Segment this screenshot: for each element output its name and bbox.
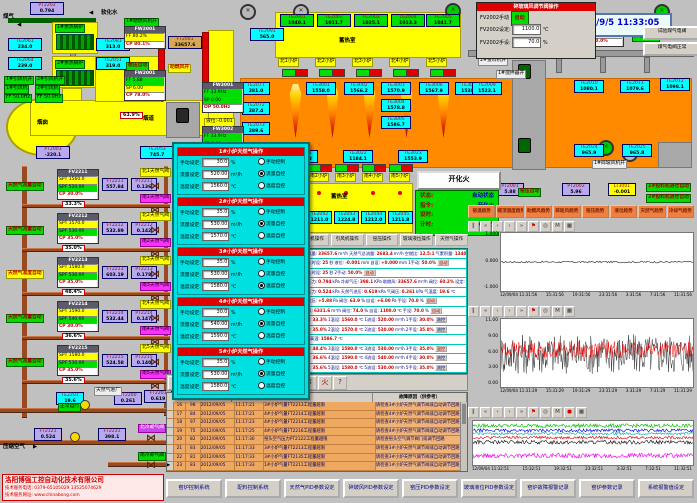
tag-value: 287.4 <box>243 109 269 115</box>
fan-pump-icon: ✕ <box>240 4 256 20</box>
port-damper[interactable] <box>282 69 308 77</box>
instrument-tag: TE3004 1578.8 <box>381 99 411 112</box>
operation-button[interactable]: 天然气操作 <box>435 234 468 246</box>
flow-auto-radio[interactable] <box>258 370 265 377</box>
data-segment: 阀位: <box>339 298 349 303</box>
valve-icon[interactable]: ⋈ <box>150 226 160 236</box>
status-label: FF 50.0Hz <box>35 94 63 103</box>
company-website[interactable]: 技术服务网址: www.chinabong.com <box>5 492 161 499</box>
temp-set-input[interactable]: 1580.0 <box>202 382 229 391</box>
trend-button[interactable]: 碎玻风趋势 <box>553 205 580 218</box>
tag-value: 1553.9 <box>399 157 427 163</box>
alarm-point: 窑头空气压力PT2122工程量越限 <box>264 436 376 445</box>
alarm-time: 11:17:21 <box>235 411 264 420</box>
x-tick: 15:31:29 <box>546 388 564 393</box>
y-tick: 9.00 <box>488 334 498 339</box>
alarm-reason: 请检查3#小炉天然气调节阀或自动调节回路 <box>376 454 467 463</box>
flow-set-label: 流量设定: <box>180 273 201 278</box>
gas-controller-faceplate[interactable]: FV2214 SPT 1590.0 SPF 540.00 CP 30.0% <box>57 301 99 332</box>
port-damper[interactable] <box>430 69 456 77</box>
chart-toolbar-icon[interactable]: « <box>480 306 491 317</box>
alarm-reason: 请检查4#小炉天然气调节阀或自动调节回路 <box>376 411 467 420</box>
gas-controller-faceplate[interactable]: FV2215 SPT 1580.0 SPF 530.00 CP 35.0% <box>57 345 99 376</box>
toolbar-icon[interactable]: ? <box>333 376 347 390</box>
instrument-tag: TE2045 1211.8 <box>388 211 413 224</box>
data-segment: 1温设: <box>328 317 340 322</box>
data-row: 5阀位:35.6%5温设:1580.0℃5流设:530.00m³/h5手设:35… <box>298 364 466 372</box>
controller-faceplate[interactable]: FW2001 FF 80.2%CP 80.1% <box>124 26 166 49</box>
nav-button[interactable]: 窑压PID参数设定 <box>402 479 458 498</box>
data-row: 碎玻风:6331.6m³/h阀位:74.0%自设:1100.0℃手设:70.0%… <box>298 307 466 315</box>
instrument-tag: PT2003 -220.1 <box>36 146 70 159</box>
temp-set-input[interactable]: 1580.0 <box>202 282 229 291</box>
burner-panel: 4#小炉天然气操作 手动设定: 30.0 % 流量设定: 540.00 m³/h… <box>177 297 305 345</box>
alarm-time: 11:17:30 <box>235 436 264 445</box>
manual-set-input[interactable]: 35.0 <box>202 208 229 217</box>
data-segment: mm <box>399 260 407 265</box>
data-row: 助燃风量:33657.6m³/h天然气总流量:2683.4m³/h空燃比:12.… <box>298 250 466 258</box>
instrument-tag: TE2001 1040.1 <box>280 14 314 27</box>
drop-pipe <box>644 57 650 73</box>
burner-panel: 2#小炉天然气操作 手动设定: 35.0 % 流量设定: 530.00 m³/h… <box>177 197 305 245</box>
data-segment: FF 80.2% <box>125 33 164 41</box>
temp-auto-radio[interactable] <box>258 282 265 289</box>
data-row: 3阀位:48.4%3温设:1580.0℃3流设:530.00m³/h3手设:35… <box>298 345 466 353</box>
chart-toolbar-icon[interactable]: ∥ <box>468 407 479 418</box>
chart-toolbar-icon[interactable]: ⚑ <box>528 407 539 418</box>
unit-label: ℃ <box>231 285 236 290</box>
manual-set-input[interactable]: 35.0 <box>202 258 229 267</box>
flow-auto-radio[interactable] <box>258 170 265 177</box>
tag-value: -220.1 <box>37 153 69 159</box>
tag-value: 1566.2 <box>345 89 373 95</box>
instrument-tag: TE3005 1586.7 <box>381 116 411 129</box>
nav-button[interactable]: 窑炉故障报警记录 <box>520 479 576 498</box>
data-segment: 自动 <box>425 297 437 304</box>
instrument-tag: TE3003 1570.9 <box>381 82 411 95</box>
operation-button[interactable]: 引风机操作 <box>331 234 364 246</box>
alarm-row[interactable]: ▶ 23 83 2012/09/05 11:17:33 1#小炉气量FT2211… <box>167 462 467 471</box>
operation-button[interactable]: 玻璃液位操作 <box>400 234 433 246</box>
y-tick: 3.00 <box>488 365 498 370</box>
valve-position-box: 48.4% <box>62 289 85 296</box>
tag-value: 603.19 <box>103 273 127 279</box>
x-tick: 12/09/04 11:31:56 <box>500 292 537 297</box>
alarm-reason: 请检查1#小炉天然气调节阀或自动调节回路 <box>376 462 467 471</box>
data-segment: 4温设: <box>328 355 340 360</box>
chart-toolbar-icon[interactable]: ▦ <box>576 407 587 418</box>
chart-toolbar-icon[interactable]: ⚑ <box>528 306 539 317</box>
temp-set-label: 温度设定: <box>180 235 201 240</box>
instrument-tag: FT2001 33657.6 <box>168 36 202 49</box>
trend-button[interactable]: 窑温趋势 <box>468 205 495 218</box>
data-segment: ℃ <box>338 336 343 341</box>
chart2-toolbar: ∥«‹›»⚑◎M▦ <box>468 306 575 317</box>
data-segment: 阀位: <box>342 308 352 313</box>
status-label: 南4小炉 <box>362 173 383 182</box>
temp-set-input[interactable]: 1560.0 <box>202 182 229 191</box>
nav-button[interactable]: 窑炉参数记录 <box>579 479 635 498</box>
instrument-tag: TE2025 965.8 <box>622 144 652 157</box>
data-segment: 3手设: <box>406 346 418 351</box>
trend-button[interactable]: 天然气趋势 <box>638 205 665 218</box>
data-segment: 自设: <box>369 308 379 313</box>
faceplate-rows: FF 5.88SP 6.00CP 78.0% <box>125 77 165 100</box>
radio-label: 流量自控 <box>266 372 285 377</box>
port-damper[interactable] <box>393 69 419 77</box>
instrument-tag: TE2044 1212.0 <box>361 211 386 224</box>
tag-value: 1558.0 <box>307 89 335 95</box>
port-damper[interactable] <box>308 164 332 172</box>
alarm-point: 3#小炉气量FT2213工程量越限 <box>264 445 376 454</box>
gas-controller-faceplate[interactable]: FV2211 SPT 1560.0 SPF 520.00 CP 30.0% <box>57 169 99 200</box>
alarm-point: 3#小炉气量FT2135工程量越限 <box>264 454 376 463</box>
gas-controller-faceplate[interactable]: FV2213 SPT 1580.0 SPF 530.00 CP 35.0% <box>57 257 99 288</box>
tag-value: 965.8 <box>623 151 651 157</box>
data-segment: 手设: <box>398 298 408 303</box>
controller-faceplate[interactable]: FW2001 FF 5.88SP 6.00CP 78.0% <box>124 70 166 101</box>
temp-auto-radio[interactable] <box>258 382 265 389</box>
valve-icon[interactable]: ⋈ <box>150 314 160 324</box>
valve-icon[interactable]: ⋈ <box>150 358 160 368</box>
chart-toolbar-icon[interactable]: « <box>480 221 491 232</box>
cp-output: CP 35.0% <box>58 367 97 375</box>
status-label: 南冷却气阀 <box>138 452 166 461</box>
data-row: 空气压力:0.524kPa天然气进压:0.619kPa气阀压:0.261kPa气… <box>298 288 466 296</box>
chart-toolbar-icon[interactable]: ▦ <box>564 306 575 317</box>
valve-icon[interactable]: ⋈ <box>146 434 156 444</box>
alarm-row[interactable]: 22 81 2012/09/05 11:17:33 3#小炉气量FT2135工程… <box>167 454 467 463</box>
x-tick: 19:31:56 <box>573 292 591 297</box>
port-damper[interactable] <box>356 69 382 77</box>
data-segment: m³/h <box>395 317 405 322</box>
x-tick: 15:31:56 <box>546 292 564 297</box>
data-segment: m³/h <box>418 279 428 284</box>
status-label: 窑压自动 <box>518 188 541 197</box>
chart-toolbar-icon[interactable]: » <box>516 306 527 317</box>
unit-label: % <box>231 311 236 316</box>
nav-button[interactable]: 玻璃液位PID参数设定 <box>461 479 517 498</box>
valve-position-box: 63.9% <box>120 112 143 119</box>
valve-icon[interactable]: ⋈ <box>150 382 160 392</box>
unit-label: ℃ <box>231 185 236 190</box>
alarm-date: 2012/09/05 <box>201 428 236 437</box>
chart-toolbar-icon[interactable]: ‹ <box>492 306 503 317</box>
chart-toolbar-icon[interactable]: M <box>552 221 563 232</box>
data-segment: 1560.0 <box>341 317 357 322</box>
radio-label: 手动控制 <box>266 360 285 365</box>
port-damper[interactable] <box>319 69 345 77</box>
alarm-point: 4#小炉气量FT2214工程量越限 <box>264 411 376 420</box>
sp-temp: SPT 1580.0 <box>58 264 97 272</box>
data-segment: kPa <box>332 289 339 294</box>
sp-flow: SPF 530.00 <box>58 360 97 368</box>
manual-control-radio[interactable] <box>258 158 265 165</box>
company-name: 洛阳博强工控自动化技术有限公司 <box>5 476 161 485</box>
x-tick: 11:32:51 <box>674 466 692 471</box>
row-number: 17 <box>174 411 186 420</box>
manual-control-radio[interactable] <box>258 308 265 315</box>
operation-button[interactable]: 窑压操作 <box>366 234 399 246</box>
alarm-row[interactable]: 21 83 2012/09/05 11:17:33 3#小炉气量FT2213工程… <box>167 445 467 454</box>
data-segment: % <box>364 308 368 313</box>
trend-button[interactable]: 助燃风趋势 <box>525 205 552 218</box>
data-segment: 530.00 <box>378 327 394 332</box>
status-label: 蓄热室 <box>338 38 357 46</box>
flow-set-input[interactable]: 530.00 <box>202 270 229 279</box>
data-segment: KPa <box>374 279 382 284</box>
trend-button[interactable]: 液位趋势 <box>610 205 637 218</box>
status-label: 2#引风机 <box>35 85 60 94</box>
temp-auto-radio[interactable] <box>258 332 265 339</box>
north-gas-valve-label: 北4天然气阀 <box>140 300 171 309</box>
tag-value: 1523.1 <box>473 89 501 95</box>
data-segment: CP 78.0% <box>125 92 164 100</box>
fv2002-setpoint-input[interactable]: 1100.0 <box>512 24 541 35</box>
alarm-reason: 请检查4#小炉天然气调节阀或自动调节回路 <box>376 428 467 437</box>
furnace-hmi-screen: ✕✕✕✕✕✕✕✕ ⋈⋈⋈ PT2202 0.794 TE2061 234.0 T… <box>0 0 697 503</box>
tag-value: 745.7 <box>141 153 173 159</box>
x-tick: 3:32:51 <box>616 466 631 471</box>
trend-button[interactable]: 碹顶温度趋势 <box>496 205 523 218</box>
gas-branch-pipe <box>22 292 170 296</box>
alarm-row[interactable]: 18 97 2012/09/05 11:17:23 4#小炉气量FT2214工程… <box>167 419 467 428</box>
alarm-row[interactable]: 19 75 2012/09/05 11:17:25 4#小炉气量FT2216工程… <box>167 428 467 437</box>
status-label: 2#余热锅炉 <box>55 60 85 69</box>
data-segment: 2683.4 <box>377 251 393 256</box>
chart-toolbar-icon[interactable]: M <box>552 306 563 317</box>
chart-toolbar-icon[interactable]: ◎ <box>540 221 551 232</box>
nav-button[interactable]: 系统报警值设定 <box>638 479 694 498</box>
data-segment: kPa <box>378 289 385 294</box>
data-segment: Pa <box>392 298 397 303</box>
gas-line-block: 天然气温度自动 FV2213 SPT 1580.0 SPF 530.00 CP … <box>0 256 172 300</box>
flow-set-input[interactable]: 520.00 <box>202 170 229 179</box>
data-segment: m³/h <box>395 355 405 360</box>
manual-control-radio[interactable] <box>258 358 265 365</box>
instrument-tag: TE3002 1566.2 <box>344 82 374 95</box>
radio-label: 手动控制 <box>266 210 285 215</box>
toolbar-icon[interactable]: 火 <box>318 376 332 390</box>
chart-toolbar-icon[interactable]: ◎ <box>540 407 551 418</box>
chart-toolbar-icon[interactable]: » <box>516 221 527 232</box>
data-segment: 自动 <box>430 307 442 314</box>
chart-toolbar-icon[interactable]: M <box>552 407 563 418</box>
chart-toolbar-icon[interactable]: ‹ <box>492 221 503 232</box>
sp-temp: SPT 1580.0 <box>58 352 97 360</box>
nav-button[interactable]: 天然气PID参数设定 <box>284 479 340 498</box>
unit-label: m³/h <box>231 273 242 278</box>
alarm-date: 2012/09/05 <box>201 419 236 428</box>
radio-label: 流量自控 <box>266 272 285 277</box>
row-marker <box>167 419 174 428</box>
y-tick: 0.00 <box>488 381 498 386</box>
tag-value: 1040.1 <box>281 21 313 27</box>
data-segment: 36.6% <box>312 355 327 360</box>
temp-auto-radio[interactable] <box>258 182 265 189</box>
tag-value: 524.58 <box>103 361 127 367</box>
fv2002-manual-input[interactable]: 70.0 <box>512 37 541 48</box>
controller-faceplate[interactable]: FW3001 FF 33.9HzSP 0.00OP 50.0Hz <box>202 82 244 113</box>
data-segment: 70.0 <box>414 308 424 313</box>
tag-value: 0.261 <box>115 399 141 405</box>
alarm-point: 1#小炉气量FT2211工程量越限 <box>264 462 376 471</box>
gas-controller-faceplate[interactable]: FV2212 SPT 1570.0 SPF 530.00 CP 35.0% <box>57 213 99 244</box>
status-label: 北4小炉 <box>389 58 410 67</box>
alarm-row[interactable]: 16 98 2012/09/05 11:17:21 3#小炉气量FT2213工程… <box>167 402 467 411</box>
tag-value: 239.0 <box>9 64 41 70</box>
status-key: 指令: <box>420 202 433 212</box>
chart3-plot <box>472 420 694 466</box>
data-segment: 33.3% <box>312 317 327 322</box>
temp-set-input[interactable]: 1570.0 <box>202 232 229 241</box>
manual-set-input[interactable]: 35.0 <box>202 358 229 367</box>
port-damper[interactable] <box>362 164 386 172</box>
tag-id: TE2043 <box>335 212 358 218</box>
chart-toolbar-icon[interactable]: ▦ <box>564 221 575 232</box>
unit-label: m³/h <box>231 223 242 228</box>
data-row: 1阀位:33.3%1温设:1560.0℃1流设:520.00m³/h1手设:30… <box>298 316 466 324</box>
data-segment: 液位: <box>334 260 344 265</box>
flow-set-input[interactable]: 530.00 <box>202 220 229 229</box>
instrument-tag: TE2072 287.4 <box>242 102 270 115</box>
flow-auto-radio[interactable] <box>258 220 265 227</box>
gas-branch-pipe <box>22 248 170 252</box>
tag-value: 1586.7 <box>382 123 410 129</box>
x-tick: 7:32:51 <box>645 466 660 471</box>
chart-toolbar-icon[interactable]: ∥ <box>468 306 479 317</box>
port-damper[interactable] <box>389 164 413 172</box>
burner-panel: 1#小炉天然气操作 手动设定: 30.0 % 流量设定: 520.00 m³/h… <box>177 147 305 195</box>
valve-icon[interactable]: ⋈ <box>146 461 156 471</box>
data-segment: +0.000 <box>381 260 398 265</box>
nav-button[interactable]: 配料控制系统 <box>225 479 281 498</box>
ignite-button[interactable]: 开化火 <box>417 171 501 190</box>
instrument-tag: TE2024 965.9 <box>574 144 604 157</box>
sp-temp: SPT 1570.0 <box>58 220 97 228</box>
chart-toolbar-icon[interactable]: › <box>504 221 515 232</box>
data-segment: 温控 <box>435 345 447 352</box>
data-segment: 1590.0 <box>341 355 357 360</box>
data-segment: 48.4% <box>312 346 327 351</box>
temp-set-input[interactable]: 1590.0 <box>202 332 229 341</box>
instrument-tag: TE2051 319.0 <box>96 57 130 70</box>
tag-value: 5.96 <box>563 190 589 196</box>
radio-label: 手动控制 <box>266 310 285 315</box>
data-segment: 74.0 <box>353 308 363 313</box>
nav-button[interactable]: 碎玻风PID参数设定 <box>343 479 399 498</box>
burner-panel-title: 5#小炉天然气操作 <box>178 348 304 356</box>
flow-set-input[interactable]: 530.00 <box>202 370 229 379</box>
flow-set-input[interactable]: 540.00 <box>202 320 229 329</box>
data-segment: kPa <box>416 289 423 294</box>
status-label: 北5小炉 <box>426 58 447 67</box>
data-segment: 手设: <box>403 308 413 313</box>
burner-panel-title: 3#小炉天然气操作 <box>178 248 304 256</box>
data-segment: 35.0% <box>419 365 434 370</box>
data-segment: 天然气总流量: <box>349 251 376 256</box>
motor-icon <box>518 138 531 153</box>
chart-toolbar-icon[interactable]: ◎ <box>540 306 551 317</box>
valve-icon[interactable]: ⋈ <box>150 270 160 280</box>
north-gas-valve-label: 北1天然气阀 <box>140 168 171 177</box>
data-segment: 3温设: <box>328 346 340 351</box>
alarm-row[interactable]: 17 84 2012/09/05 11:17:21 4#小炉气量FT2214工程… <box>167 411 467 420</box>
data-segment: m³/h <box>395 346 405 351</box>
chart-toolbar-icon[interactable]: « <box>480 407 491 418</box>
alarm-id: 81 <box>186 454 201 463</box>
status-label: 南3小炉 <box>335 173 356 182</box>
tag-value: 1212.0 <box>362 218 385 224</box>
chart-toolbar-icon[interactable]: ● <box>564 407 575 418</box>
tag-value: 1578.8 <box>382 106 410 112</box>
manual-control-radio[interactable] <box>258 208 265 215</box>
data-segment: 4流设: <box>364 355 376 360</box>
alarm-row[interactable]: 20 82 2012/09/05 11:17:30 窑头空气压力PT2122工程… <box>167 436 467 445</box>
status-label: FF 50.0Hz <box>4 94 32 103</box>
x-tick: 7:31:29 <box>650 388 665 393</box>
manual-set-input[interactable]: 30.0 <box>202 158 229 167</box>
valve-icon[interactable]: ⋈ <box>150 182 160 192</box>
chart-toolbar-icon[interactable]: ⚑ <box>528 221 539 232</box>
fault-reason-header: 故障原因（供参考） <box>373 393 467 402</box>
test-gas-valve-button[interactable]: 试验煤气电阀 <box>643 26 697 40</box>
flow-set-label: 流量设定: <box>180 373 201 378</box>
flow-auto-radio[interactable] <box>258 320 265 327</box>
alarm-id: 98 <box>186 402 201 411</box>
alarm-time: 11:17:23 <box>235 419 264 428</box>
tag-value: 1184.1 <box>344 157 372 163</box>
unit-label: m³/h <box>231 373 242 378</box>
tag-value: 1041.7 <box>427 21 459 27</box>
instrument-tag: PT2202 0.794 <box>30 2 64 15</box>
drop-pipe <box>556 57 562 73</box>
alarm-date: 2012/09/05 <box>201 436 236 445</box>
gas-valve-ok-button[interactable]: 煤气电阀正常 <box>643 42 697 56</box>
chart-toolbar-icon[interactable]: ‹ <box>492 407 503 418</box>
trend-button[interactable]: 冷却气趋势 <box>667 205 694 218</box>
port-damper[interactable] <box>335 164 359 172</box>
chart-toolbar-icon[interactable]: ∥ <box>468 221 479 232</box>
chart2-yaxis: 11.009.006.003.000.00 <box>466 318 498 386</box>
status-label: ◀ <box>16 22 22 30</box>
chart-toolbar-icon[interactable]: › <box>504 407 515 418</box>
alarm-scrollbar[interactable] <box>460 402 467 471</box>
data-segment: 540.00 <box>378 355 394 360</box>
temp-auto-radio[interactable] <box>258 232 265 239</box>
instrument-tag: FT2121 0.524 <box>34 428 62 441</box>
manual-control-radio[interactable] <box>258 258 265 265</box>
flowmeter-icon <box>70 432 80 442</box>
x-tick: 19:31:29 <box>573 388 591 393</box>
data-segment: 63.9 <box>350 298 360 303</box>
flow-auto-radio[interactable] <box>258 270 265 277</box>
chart-toolbar-icon[interactable]: › <box>504 306 515 317</box>
data-row: 煤气压力:0.794kPa冷却气压:398.1KPa助燃风:33657.6m³/… <box>298 278 466 286</box>
manual-set-input[interactable]: 30.0 <box>202 308 229 317</box>
x-tick: 12/09/04 11:31:29 <box>500 388 537 393</box>
flow-tag: FT2214 532.44 <box>102 310 128 323</box>
instrument-tag: TE2004 1013.3 <box>391 14 425 27</box>
data-segment: m³/h <box>395 365 405 370</box>
alarm-point: 4#小炉气量FT2214工程量越限 <box>264 419 376 428</box>
data-segment: 35.0% <box>419 346 434 351</box>
nav-button[interactable]: 窑炉控制系统 <box>166 479 222 498</box>
trend-button[interactable]: 窑压趋势 <box>582 205 609 218</box>
data-segment: kPa <box>332 279 339 284</box>
x-tick: 11:31:29 <box>674 388 692 393</box>
chart-toolbar-icon[interactable]: » <box>516 407 527 418</box>
